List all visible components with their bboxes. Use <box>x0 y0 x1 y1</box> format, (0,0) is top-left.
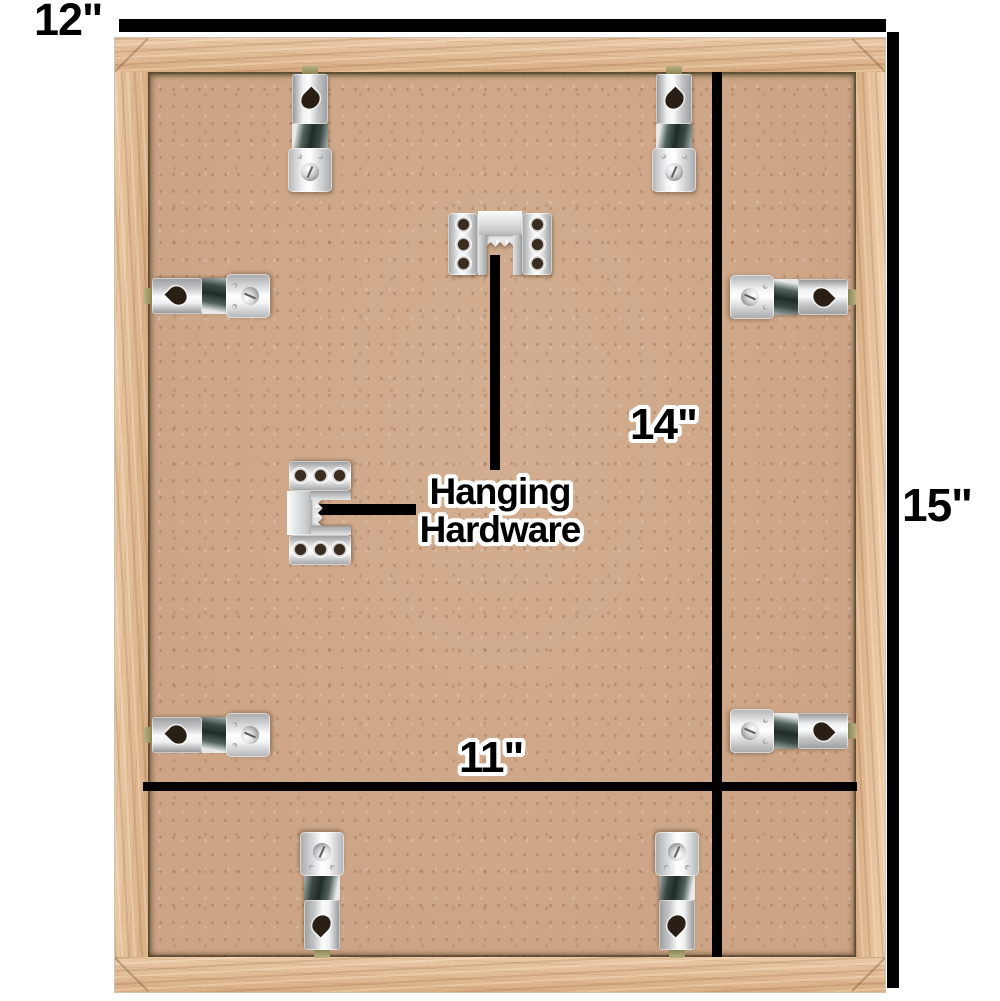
inner-height-dimension-line <box>712 72 722 957</box>
hanging-hardware-label-line2: Hardware <box>382 511 618 549</box>
hanging-hardware-label: Hanging Hardware <box>382 473 618 549</box>
frame-top-rail <box>115 38 885 72</box>
clip-hook <box>848 723 856 739</box>
retainer-clip-left-top <box>144 274 270 318</box>
sawtooth-hanger-side <box>287 461 353 565</box>
frame-back-diagram: 12" 15" 14" 11" Hanging Hardware <box>0 0 1000 1001</box>
clip-hook <box>669 950 685 958</box>
clip-hook <box>144 288 152 304</box>
retainer-clip-bottom-right <box>655 832 699 958</box>
clip-screw <box>301 163 319 181</box>
retainer-clip-left-bottom <box>144 713 270 757</box>
clip-hook <box>314 950 330 958</box>
miter-joint-top-left <box>115 38 148 72</box>
outer-height-label: 15" <box>902 478 972 532</box>
miter-joint-top-right <box>852 38 885 72</box>
frame-right-rail <box>856 72 885 957</box>
sawtooth-bridge <box>478 211 522 277</box>
retainer-clip-right-bottom <box>730 709 856 753</box>
hanger-plate <box>522 213 552 275</box>
retainer-clip-top-left <box>288 66 332 192</box>
miter-joint-bottom-right <box>852 957 885 992</box>
clip-screw <box>313 843 331 861</box>
outer-height-dimension-line <box>887 32 899 988</box>
hanger-plate <box>448 213 478 275</box>
hardware-leader-line-vertical <box>490 255 500 470</box>
retainer-clip-bottom-left <box>300 832 344 958</box>
teardrop-hole <box>164 722 190 748</box>
inner-height-label: 14" <box>630 400 697 450</box>
teardrop-hole <box>661 86 687 112</box>
teardrop-hole <box>810 284 836 310</box>
outer-width-label: 12" <box>34 0 102 46</box>
miter-joint-bottom-left <box>115 957 148 992</box>
clip-hook <box>302 66 318 74</box>
inner-width-label: 11" <box>459 733 523 783</box>
frame-left-rail <box>115 72 148 957</box>
teardrop-hole <box>664 912 690 938</box>
inner-width-dimension-line <box>143 782 857 791</box>
clip-screw <box>665 163 683 181</box>
sawtooth-teeth <box>486 237 514 247</box>
hanging-hardware-label-line1: Hanging <box>382 473 618 511</box>
clip-hook <box>144 727 152 743</box>
clip-screw <box>668 843 686 861</box>
frame-bottom-rail <box>115 957 885 992</box>
teardrop-hole <box>810 718 836 744</box>
retainer-clip-top-right <box>652 66 696 192</box>
clip-hook <box>848 289 856 305</box>
teardrop-hole <box>297 86 323 112</box>
retainer-clip-right-top <box>730 275 856 319</box>
sawtooth-hanger-top <box>448 211 552 277</box>
clip-screw <box>241 726 259 744</box>
clip-screw <box>741 288 759 306</box>
teardrop-hole <box>164 283 190 309</box>
sawtooth-bridge <box>287 491 353 535</box>
sawtooth-teeth <box>313 499 323 527</box>
hanger-plate <box>289 461 351 491</box>
hanger-plate <box>289 535 351 565</box>
clip-screw <box>241 287 259 305</box>
outer-width-dimension-line <box>119 19 886 32</box>
teardrop-hole <box>309 912 335 938</box>
clip-screw <box>741 722 759 740</box>
clip-hook <box>666 66 682 74</box>
